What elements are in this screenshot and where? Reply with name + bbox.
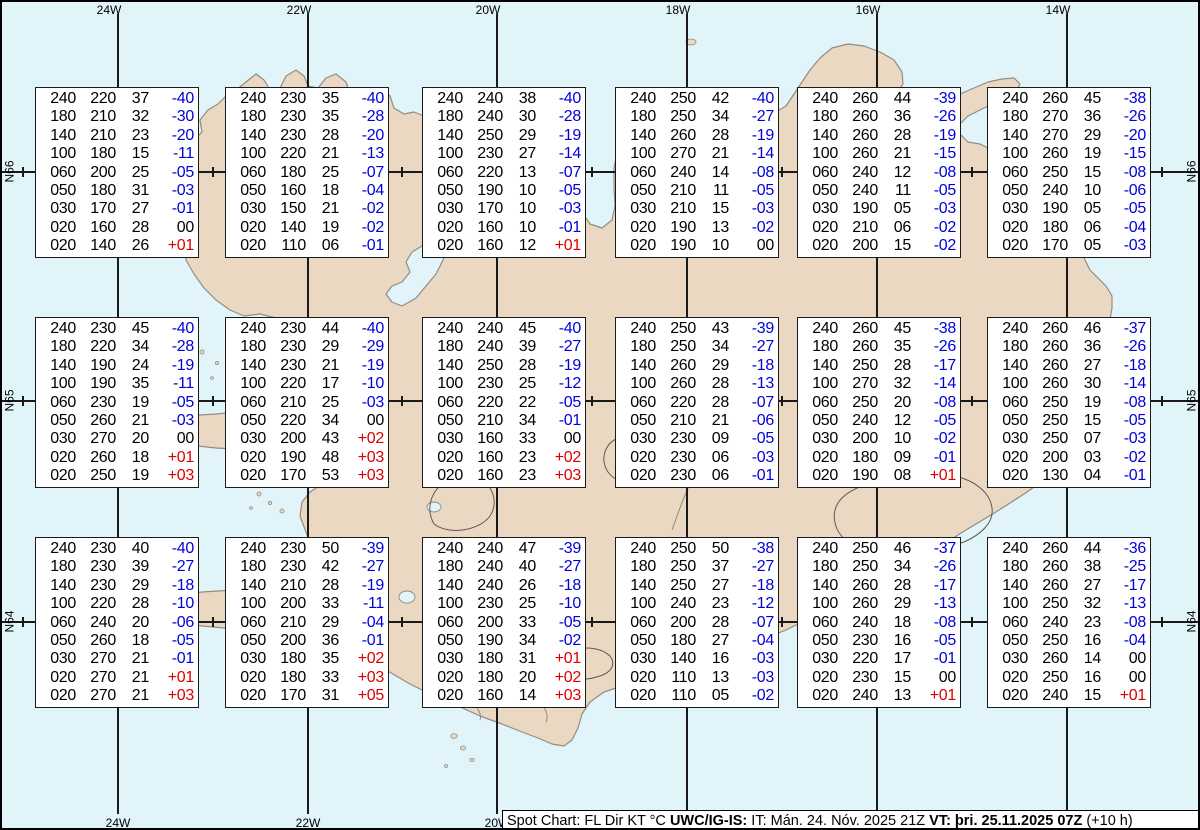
graticule-tick (591, 167, 593, 177)
temperature-value: -05 (752, 430, 774, 448)
wind-speed-value: 13 (712, 669, 729, 687)
wind-speed-value: 31 (322, 687, 339, 705)
wind-direction-value: 230 (90, 394, 116, 412)
wind-direction-value: 260 (852, 320, 878, 338)
wind-direction-value: 140 (670, 650, 696, 668)
spot-row: 06025020-08 (805, 394, 954, 412)
flight-level-value: 020 (1002, 467, 1028, 485)
wind-speed-value: 22 (519, 394, 536, 412)
spot-row: 18022034-28 (43, 338, 192, 356)
temperature-value: -06 (1124, 182, 1146, 200)
flight-level-value: 050 (1002, 182, 1028, 200)
wind-direction-value: 180 (670, 632, 696, 650)
temperature-value: -17 (934, 357, 956, 375)
spot-row: 05026021-03 (43, 412, 192, 430)
spot-row: 18024039-27 (430, 338, 579, 356)
wind-direction-value: 230 (90, 558, 116, 576)
wind-direction-value: 210 (90, 108, 116, 126)
spot-row: 05016018-04 (233, 182, 382, 200)
latitude-label-left: N66 (3, 155, 16, 189)
flight-level-value: 060 (630, 164, 656, 182)
wind-direction-value: 260 (852, 595, 878, 613)
flight-level-value: 180 (50, 558, 76, 576)
wind-direction-value: 110 (281, 237, 306, 255)
flight-level-value: 020 (630, 467, 656, 485)
temperature-value: -20 (362, 127, 384, 145)
flight-level-value: 030 (630, 200, 656, 218)
temperature-value: 00 (1129, 669, 1146, 687)
wind-speed-value: 30 (519, 108, 536, 126)
wind-speed-value: 28 (322, 577, 339, 595)
flight-level-value: 180 (812, 558, 838, 576)
wind-speed-value: 35 (322, 108, 339, 126)
graticule-tick (212, 396, 214, 406)
flight-level-value: 030 (240, 430, 266, 448)
wind-speed-value: 21 (132, 650, 149, 668)
spot-table: 24026045-3818027036-2614027029-201002601… (987, 87, 1151, 258)
temperature-value: -01 (559, 412, 581, 430)
spot-row: 10022017-10 (233, 375, 382, 393)
flight-level-value: 140 (812, 577, 838, 595)
longitude-label-top: 16W (846, 3, 890, 17)
flight-level-value: 020 (437, 687, 463, 705)
wind-direction-value: 270 (90, 430, 116, 448)
wind-speed-value: 42 (712, 90, 729, 108)
temperature-value: -03 (752, 200, 774, 218)
wind-direction-value: 210 (477, 412, 503, 430)
wind-speed-value: 17 (894, 650, 911, 668)
wind-speed-value: 15 (132, 145, 149, 163)
spot-row: 24025043-39 (623, 320, 772, 338)
wind-speed-value: 15 (712, 200, 729, 218)
flight-level-value: 020 (1002, 669, 1028, 687)
wind-direction-value: 200 (280, 595, 306, 613)
spot-row: 05026018-05 (43, 632, 192, 650)
temperature-value: +02 (358, 650, 384, 668)
spot-row: 06024012-08 (805, 164, 954, 182)
temperature-value: -02 (934, 237, 956, 255)
flight-level-value: 060 (437, 614, 463, 632)
flight-level-value: 240 (240, 540, 266, 558)
wind-direction-value: 200 (670, 614, 696, 632)
wind-speed-value: 44 (1084, 540, 1101, 558)
flight-level-value: 180 (437, 558, 463, 576)
wind-speed-value: 26 (519, 577, 536, 595)
wind-direction-value: 260 (852, 338, 878, 356)
wind-direction-value: 230 (670, 449, 696, 467)
flight-level-value: 240 (812, 320, 838, 338)
wind-direction-value: 180 (280, 650, 306, 668)
temperature-value: +01 (555, 650, 581, 668)
spot-row: 06021025-03 (233, 394, 382, 412)
flight-level-value: 060 (812, 164, 838, 182)
wind-speed-value: 21 (132, 687, 149, 705)
wind-speed-value: 17 (322, 375, 339, 393)
spot-row: 05018031-03 (43, 182, 192, 200)
wind-direction-value: 260 (670, 357, 696, 375)
temperature-value: -05 (1124, 412, 1146, 430)
spot-row: 02018033+03 (233, 669, 382, 687)
temperature-value: -04 (362, 614, 384, 632)
flight-level-value: 020 (437, 449, 463, 467)
spot-row: 14026028-17 (805, 577, 954, 595)
temperature-value: -27 (752, 558, 774, 576)
flight-level-value: 180 (812, 338, 838, 356)
temperature-value: -28 (362, 108, 384, 126)
flight-level-value: 050 (50, 412, 76, 430)
spot-row: 10018015-11 (43, 145, 192, 163)
temperature-value: -07 (559, 164, 581, 182)
flight-level-value: 060 (812, 614, 838, 632)
wind-direction-value: 210 (90, 127, 116, 145)
wind-direction-value: 260 (1042, 540, 1068, 558)
flight-level-value: 100 (1002, 595, 1028, 613)
wind-speed-value: 21 (894, 145, 911, 163)
wind-speed-value: 21 (322, 200, 339, 218)
caption-source: UWC/IG-IS: (670, 813, 747, 829)
wind-speed-value: 28 (894, 357, 911, 375)
wind-speed-value: 36 (1084, 108, 1101, 126)
spot-row: 02027021+01 (43, 669, 192, 687)
spot-row: 06020028-07 (623, 614, 772, 632)
spot-row: 14026027-18 (995, 357, 1144, 375)
wind-direction-value: 240 (670, 595, 696, 613)
spot-row: 03021015-03 (623, 200, 772, 218)
wind-direction-value: 190 (852, 200, 878, 218)
spot-table: 24024045-4018024039-2714025028-191002302… (422, 317, 586, 488)
wind-direction-value: 240 (90, 614, 116, 632)
latitude-label-right: N66 (1185, 155, 1198, 189)
wind-speed-value: 21 (322, 145, 339, 163)
wind-direction-value: 240 (670, 164, 696, 182)
wind-direction-value: 220 (280, 412, 306, 430)
flight-level-value: 060 (1002, 394, 1028, 412)
wind-direction-value: 180 (280, 164, 306, 182)
wind-speed-value: 26 (132, 237, 149, 255)
wind-direction-value: 200 (1042, 449, 1068, 467)
spot-row: 18023035-28 (233, 108, 382, 126)
flight-level-value: 050 (437, 632, 463, 650)
wind-speed-value: 28 (894, 127, 911, 145)
spot-table: 24025043-3918025034-2714026029-181002602… (615, 317, 779, 488)
spot-row: 18023039-27 (43, 558, 192, 576)
spot-row: 02014019-02 (233, 219, 382, 237)
wind-direction-value: 240 (1042, 182, 1068, 200)
spot-row: 14023029-18 (43, 577, 192, 595)
wind-speed-value: 34 (322, 412, 339, 430)
temperature-value: -05 (934, 182, 956, 200)
temperature-value: -05 (1124, 200, 1146, 218)
spot-row: 02016014+03 (430, 687, 579, 705)
wind-speed-value: 09 (894, 449, 911, 467)
flight-level-value: 020 (812, 237, 838, 255)
wind-direction-value: 180 (477, 650, 503, 668)
flight-level-value: 030 (1002, 430, 1028, 448)
temperature-value: -19 (172, 357, 194, 375)
wind-speed-value: 13 (894, 687, 911, 705)
temperature-value: -29 (362, 338, 384, 356)
temperature-value: -40 (172, 320, 194, 338)
wind-direction-value: 260 (1042, 577, 1068, 595)
spot-row: 02021006-02 (805, 219, 954, 237)
spot-row: 02011005-02 (623, 687, 772, 705)
spot-row: 02016023+03 (430, 467, 579, 485)
temperature-value: 00 (939, 669, 956, 687)
spot-row: 03015021-02 (233, 200, 382, 218)
wind-speed-value: 36 (894, 108, 911, 126)
wind-direction-value: 130 (1042, 467, 1068, 485)
wind-direction-value: 200 (477, 614, 503, 632)
spot-row: 02016012+01 (430, 237, 579, 255)
temperature-value: 00 (177, 430, 194, 448)
flight-level-value: 140 (1002, 577, 1028, 595)
spot-row: 03017027-01 (43, 200, 192, 218)
spot-row: 24026045-38 (995, 90, 1144, 108)
spot-table: 24023050-3918023042-2714021028-191002003… (225, 537, 389, 708)
flight-level-value: 020 (240, 669, 266, 687)
spot-row: 18025034-26 (805, 558, 954, 576)
wind-speed-value: 18 (894, 614, 911, 632)
wind-speed-value: 25 (322, 164, 339, 182)
temperature-value: +03 (555, 687, 581, 705)
wind-speed-value: 24 (132, 357, 149, 375)
wind-direction-value: 160 (477, 467, 503, 485)
wind-speed-value: 06 (712, 449, 729, 467)
wind-direction-value: 270 (1042, 108, 1068, 126)
wind-direction-value: 160 (477, 687, 503, 705)
spot-row: 03018031+01 (430, 650, 579, 668)
wind-direction-value: 260 (1042, 357, 1068, 375)
longitude-label-top: 24W (87, 3, 131, 17)
temperature-value: -05 (172, 394, 194, 412)
spot-row: 10022028-10 (43, 595, 192, 613)
spot-row: 06024018-08 (805, 614, 954, 632)
temperature-value: -01 (362, 632, 384, 650)
spot-row: 10023025-10 (430, 595, 579, 613)
wind-direction-value: 140 (280, 219, 306, 237)
wind-speed-value: 44 (894, 90, 911, 108)
spot-row: 14025027-18 (623, 577, 772, 595)
temperature-value: +02 (555, 449, 581, 467)
wind-direction-value: 230 (280, 320, 306, 338)
wind-direction-value: 250 (1042, 164, 1068, 182)
spot-row: 0302601400 (995, 650, 1144, 668)
wind-speed-value: 19 (132, 467, 149, 485)
temperature-value: -02 (362, 219, 384, 237)
wind-speed-value: 50 (712, 540, 729, 558)
temperature-value: -19 (559, 127, 581, 145)
wind-direction-value: 190 (477, 182, 503, 200)
wind-direction-value: 260 (1042, 558, 1068, 576)
temperature-value: -18 (1124, 357, 1146, 375)
wind-direction-value: 180 (90, 182, 116, 200)
wind-direction-value: 210 (670, 412, 696, 430)
wind-speed-value: 32 (1084, 595, 1101, 613)
spot-row: 02019048+03 (233, 449, 382, 467)
wind-speed-value: 40 (132, 540, 149, 558)
flight-level-value: 020 (50, 467, 76, 485)
wind-direction-value: 230 (280, 540, 306, 558)
flight-level-value: 060 (240, 614, 266, 632)
flight-level-value: 050 (630, 182, 656, 200)
spot-row: 02011006-01 (233, 237, 382, 255)
flight-level-value: 100 (240, 145, 266, 163)
spot-row: 03027021-01 (43, 650, 192, 668)
temperature-value: 00 (757, 237, 774, 255)
spot-row: 02016010-01 (430, 219, 579, 237)
temperature-value: -05 (934, 632, 956, 650)
spot-row: 05024012-05 (805, 412, 954, 430)
spot-row: 10026029-13 (805, 595, 954, 613)
flight-level-value: 020 (50, 219, 76, 237)
temperature-value: 00 (367, 412, 384, 430)
spot-table: 24024038-4018024030-2814025029-191002302… (422, 87, 586, 258)
wind-direction-value: 260 (90, 449, 116, 467)
temperature-value: +01 (168, 669, 194, 687)
temperature-value: +03 (358, 669, 384, 687)
wind-speed-value: 32 (132, 108, 149, 126)
wind-speed-value: 32 (894, 375, 911, 393)
wind-speed-value: 12 (519, 237, 536, 255)
graticule-tick (401, 396, 403, 406)
temperature-value: -19 (362, 577, 384, 595)
caption-issue-time: IT: Mán. 24. Nóv. 2025 21Z (747, 813, 929, 829)
wind-speed-value: 28 (322, 127, 339, 145)
spot-row: 06022022-05 (430, 394, 579, 412)
flight-level-value: 100 (437, 595, 463, 613)
spot-row: 10020033-11 (233, 595, 382, 613)
temperature-value: +05 (358, 687, 384, 705)
wind-speed-value: 34 (519, 632, 536, 650)
temperature-value: -02 (934, 430, 956, 448)
temperature-value: -04 (1124, 632, 1146, 650)
spot-row: 24025050-38 (623, 540, 772, 558)
spot-row: 24023045-40 (43, 320, 192, 338)
temperature-value: -02 (752, 219, 774, 237)
wind-direction-value: 250 (1042, 595, 1068, 613)
flight-level-value: 020 (630, 219, 656, 237)
wind-speed-value: 10 (1084, 182, 1101, 200)
flight-level-value: 060 (630, 614, 656, 632)
flight-level-value: 100 (240, 375, 266, 393)
spot-table: 24023040-4018023039-2714023029-181002202… (35, 537, 199, 708)
temperature-value: -27 (172, 558, 194, 576)
wind-speed-value: 43 (712, 320, 729, 338)
temperature-value: -02 (559, 632, 581, 650)
flight-level-value: 030 (240, 200, 266, 218)
flight-level-value: 240 (812, 90, 838, 108)
wind-speed-value: 34 (132, 338, 149, 356)
spot-row: 10022021-13 (233, 145, 382, 163)
spot-row: 03020043+02 (233, 430, 382, 448)
flight-level-value: 020 (630, 687, 656, 705)
wind-direction-value: 160 (280, 182, 306, 200)
graticule-tick (781, 396, 783, 406)
spot-row: 24026046-37 (995, 320, 1144, 338)
wind-direction-value: 230 (477, 595, 503, 613)
wind-speed-value: 29 (322, 338, 339, 356)
wind-direction-value: 250 (1042, 394, 1068, 412)
graticule-tick (22, 617, 24, 627)
flight-level-value: 030 (812, 200, 838, 218)
spot-row: 24024038-40 (430, 90, 579, 108)
spot-row: 03025007-03 (995, 430, 1144, 448)
wind-speed-value: 40 (519, 558, 536, 576)
spot-row: 02020015-02 (805, 237, 954, 255)
spot-row: 24026045-38 (805, 320, 954, 338)
wind-speed-value: 34 (712, 108, 729, 126)
spot-row: 02019013-02 (623, 219, 772, 237)
flight-level-value: 030 (50, 200, 76, 218)
spot-row: 02018020+02 (430, 669, 579, 687)
spot-row: 10026030-14 (995, 375, 1144, 393)
temperature-value: -20 (172, 127, 194, 145)
temperature-value: -27 (362, 558, 384, 576)
wind-speed-value: 14 (519, 687, 536, 705)
wind-speed-value: 29 (322, 614, 339, 632)
spot-row: 18025037-27 (623, 558, 772, 576)
wind-direction-value: 170 (477, 200, 503, 218)
spot-table: 24026046-3718026036-2614026027-181002603… (987, 317, 1151, 488)
wind-speed-value: 07 (1084, 430, 1101, 448)
wind-direction-value: 230 (852, 669, 878, 687)
wind-speed-value: 47 (519, 540, 536, 558)
flight-level-value: 180 (1002, 338, 1028, 356)
wind-speed-value: 12 (894, 164, 911, 182)
flight-level-value: 240 (630, 320, 656, 338)
wind-speed-value: 34 (519, 412, 536, 430)
wind-direction-value: 260 (90, 632, 116, 650)
spot-row: 0201602800 (43, 219, 192, 237)
wind-direction-value: 260 (1042, 320, 1068, 338)
caption-valid-time: VT: þri. 25.11.2025 07Z (929, 813, 1082, 829)
flight-level-value: 240 (50, 320, 76, 338)
wind-direction-value: 230 (670, 467, 696, 485)
spot-row: 02017031+05 (233, 687, 382, 705)
wind-speed-value: 08 (894, 467, 911, 485)
longitude-label-top: 20W (466, 3, 510, 17)
wind-direction-value: 210 (280, 577, 306, 595)
wind-speed-value: 27 (1084, 357, 1101, 375)
wind-speed-value: 10 (519, 219, 536, 237)
spot-row: 05020036-01 (233, 632, 382, 650)
flight-level-value: 020 (50, 687, 76, 705)
temperature-value: -37 (1124, 320, 1146, 338)
wind-speed-value: 36 (1084, 338, 1101, 356)
wind-speed-value: 34 (712, 338, 729, 356)
flight-level-value: 020 (812, 449, 838, 467)
temperature-value: -05 (559, 614, 581, 632)
wind-direction-value: 270 (90, 687, 116, 705)
wind-speed-value: 45 (894, 320, 911, 338)
wind-speed-value: 19 (1084, 145, 1101, 163)
wind-speed-value: 28 (712, 127, 729, 145)
wind-direction-value: 250 (670, 108, 696, 126)
wind-speed-value: 19 (132, 394, 149, 412)
spot-row: 03019005-05 (995, 200, 1144, 218)
temperature-value: -13 (1124, 595, 1146, 613)
spot-row: 02027021+03 (43, 687, 192, 705)
spot-row: 14023028-20 (233, 127, 382, 145)
spot-row: 24023044-40 (233, 320, 382, 338)
wind-direction-value: 200 (90, 164, 116, 182)
spot-row: 24025042-40 (623, 90, 772, 108)
temperature-value: 00 (564, 430, 581, 448)
wind-direction-value: 210 (280, 394, 306, 412)
flight-level-value: 020 (437, 467, 463, 485)
wind-speed-value: 20 (894, 394, 911, 412)
wind-speed-value: 28 (712, 394, 729, 412)
